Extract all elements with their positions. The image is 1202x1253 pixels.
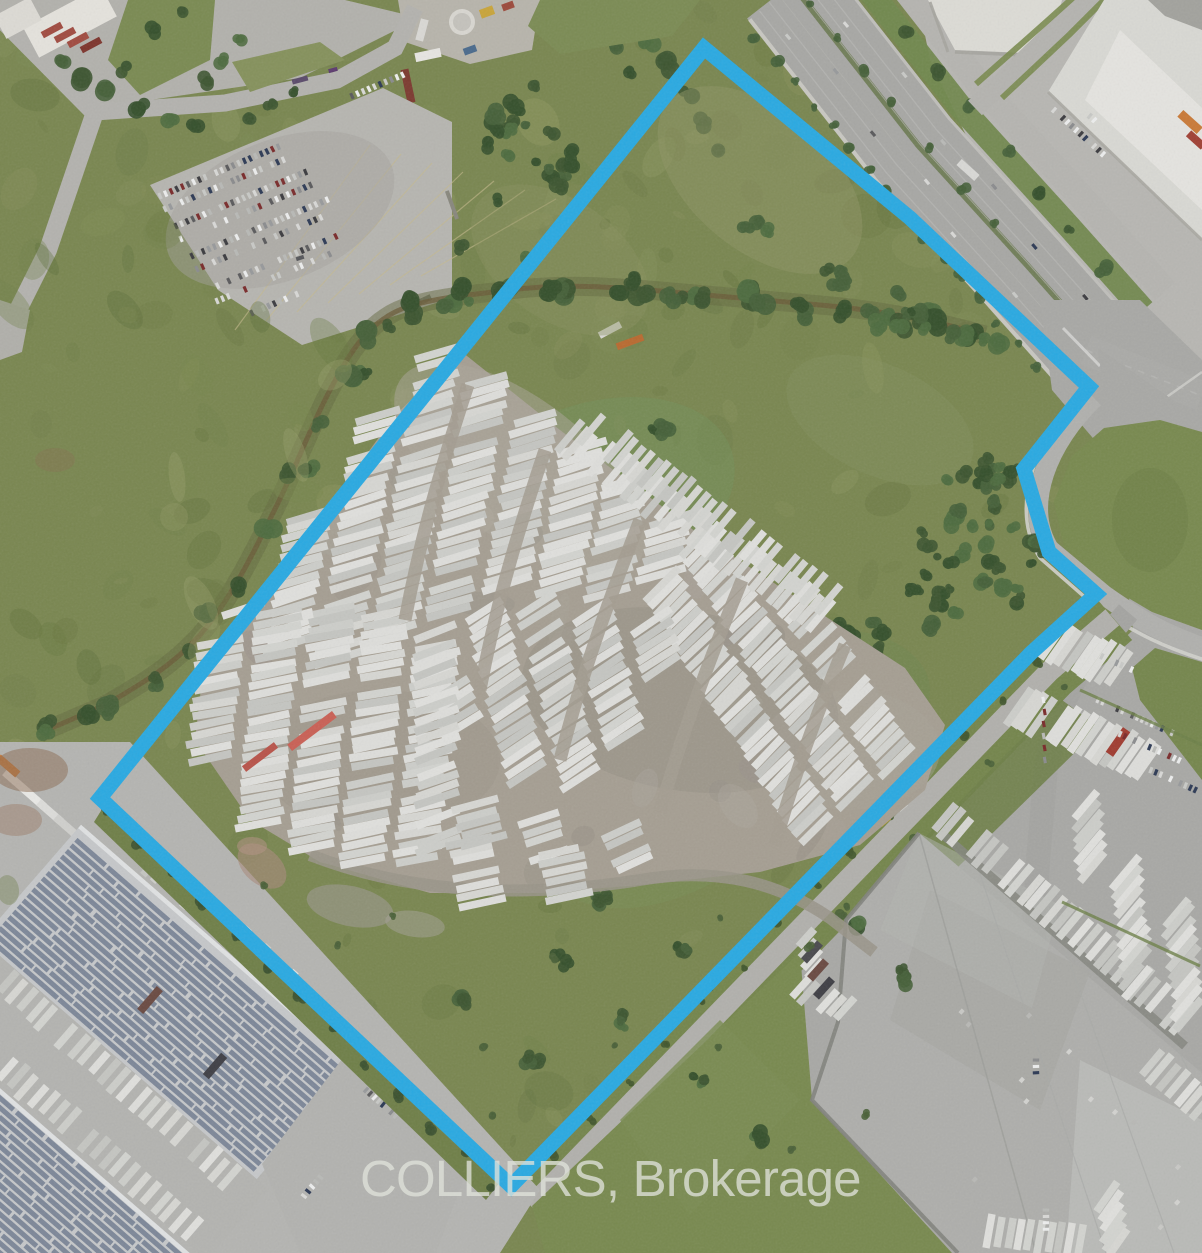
svg-text:COLLIERS, Brokerage: COLLIERS, Brokerage: [360, 1150, 861, 1207]
